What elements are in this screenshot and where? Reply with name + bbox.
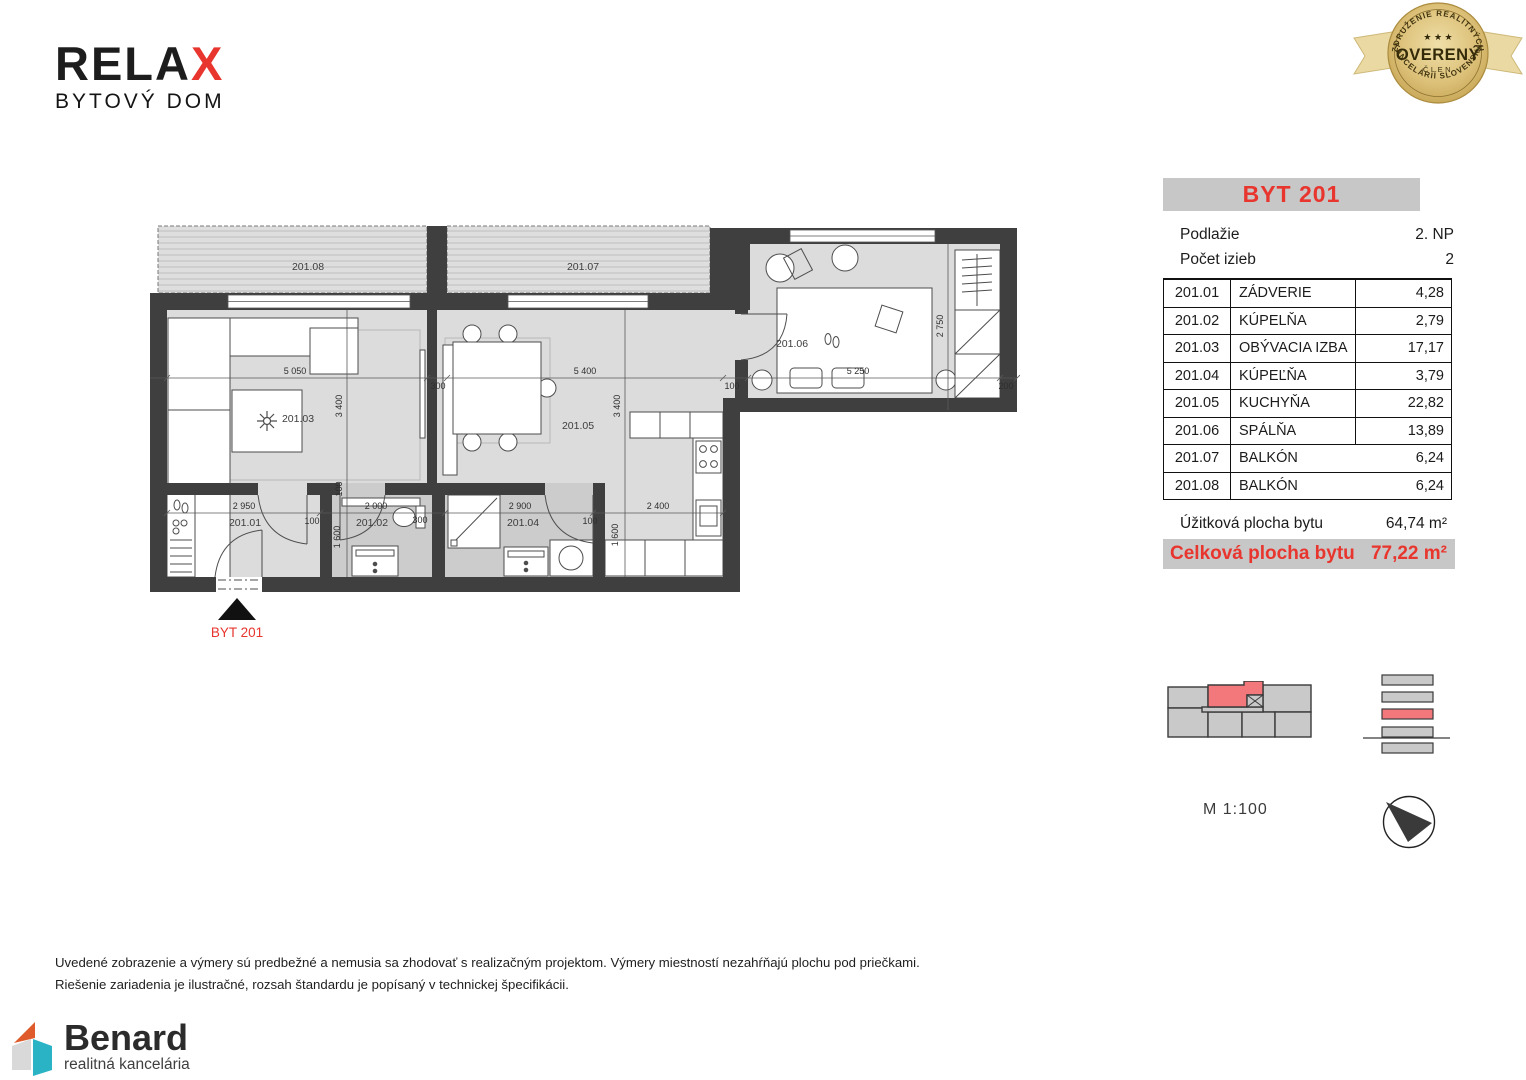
room-area: 22,82 xyxy=(1356,395,1451,411)
room-code: 201.03 xyxy=(1164,335,1231,362)
room-code: 201.08 xyxy=(1164,473,1231,500)
table-row: 201.02 KÚPELŇA 2,79 xyxy=(1164,308,1451,336)
dim-label: 100 xyxy=(724,381,739,391)
room-name: KÚPELŇA xyxy=(1231,308,1356,335)
room-code: 201.05 xyxy=(1164,390,1231,417)
tv xyxy=(420,350,425,438)
table-row: 201.03 OBÝVACIA IZBA 17,17 xyxy=(1164,335,1451,363)
balcony-201-08 xyxy=(158,226,427,293)
north-compass xyxy=(1381,795,1437,851)
dining-table xyxy=(453,342,541,434)
disclaimer-line1: Uvedené zobrazenie a výmery sú predbežné… xyxy=(55,952,1065,974)
benard-tagline: realitná kancelária xyxy=(64,1056,190,1074)
badge-stars-icon: ★ ★ ★ xyxy=(1423,32,1452,42)
room-name: OBÝVACIA IZBA xyxy=(1231,335,1356,362)
chair xyxy=(499,433,517,451)
room-area: 2,79 xyxy=(1356,313,1451,329)
hall-shoe-rack xyxy=(167,492,195,577)
table-row: 201.07 BALKÓN 6,24 xyxy=(1164,445,1451,473)
total-area-value: 77,22 m² xyxy=(1371,543,1447,565)
dim-label: 5 050 xyxy=(284,366,307,376)
slipper xyxy=(825,334,831,345)
room-name: KÚPEĽŇA xyxy=(1231,363,1356,390)
entrance-arrow-icon xyxy=(218,598,256,620)
room-name: ZÁDVERIE xyxy=(1231,280,1356,307)
bedroom-armchair xyxy=(766,254,794,282)
overeny-badge: ZDRUŽENIE REALITNÝCH ★ ★ ★ OVERENÝ ČLEN … xyxy=(1352,0,1524,124)
dim-label: 2 750 xyxy=(935,315,945,338)
total-area-label: Celková plocha bytu xyxy=(1170,543,1355,565)
room-area: 17,17 xyxy=(1356,340,1451,356)
dim-label: 2 950 xyxy=(233,501,256,511)
plant-icon xyxy=(257,411,277,431)
area-summary: Úžitková plocha bytu 64,74 m² Celková pl… xyxy=(1163,511,1455,569)
overeny-badge-seal-icon: ZDRUŽENIE REALITNÝCH ★ ★ ★ OVERENÝ ČLEN … xyxy=(1352,0,1524,124)
disclaimer: Uvedené zobrazenie a výmery sú predbežné… xyxy=(55,952,1065,996)
bathroom-sink xyxy=(550,540,593,576)
dim-label: 5 400 xyxy=(574,366,597,376)
floor-value: 2. NP xyxy=(1415,226,1454,244)
room-code: 201.07 xyxy=(1164,445,1231,472)
room-area: 4,28 xyxy=(1356,285,1451,301)
apartment-info: Podlažie 2. NP Počet izieb 2 xyxy=(1163,222,1464,272)
dim-label: 100 xyxy=(334,481,344,496)
room-label-201-03: 201.03 xyxy=(282,413,314,425)
dim-label: 3 400 xyxy=(334,395,344,418)
room-name: KUCHYŇA xyxy=(1231,390,1356,417)
room-code: 201.01 xyxy=(1164,280,1231,307)
apartment-title: BYT 201 xyxy=(1163,178,1420,211)
benard-text: Benard realitná kancelária xyxy=(64,1020,190,1074)
balcony-201-07 xyxy=(447,226,710,293)
relax-logo-title: RELAX xyxy=(55,40,225,88)
armchair xyxy=(310,328,358,374)
dim-label: 5 250 xyxy=(847,366,870,376)
room-area: 3,79 xyxy=(1356,368,1451,384)
table-row: 201.08 BALKÓN 6,24 xyxy=(1164,473,1451,500)
room-name: BALKÓN xyxy=(1231,445,1356,472)
relax-logo-black: RELA xyxy=(55,37,191,90)
room-area: 6,24 xyxy=(1356,450,1451,466)
dim-label: 300 xyxy=(412,515,427,525)
relax-logo-subtitle: BYTOVÝ DOM xyxy=(55,90,225,114)
dim-label: 100 xyxy=(304,516,319,526)
benard-cube-icon xyxy=(8,1020,54,1076)
slipper xyxy=(833,337,839,348)
room-code: 201.02 xyxy=(1164,308,1231,335)
room-label-201-01: 201.01 xyxy=(229,517,261,529)
kitchen-counter-top xyxy=(630,412,723,438)
side-table xyxy=(832,245,858,271)
compass-icon xyxy=(1381,795,1437,851)
info-row-floor: Podlažie 2. NP xyxy=(1180,222,1464,247)
table-row: 201.01 ZÁDVERIE 4,28 xyxy=(1164,280,1451,308)
room-area: 6,24 xyxy=(1356,478,1451,494)
apartment-info-panel: BYT 201 Podlažie 2. NP Počet izieb 2 201… xyxy=(1163,178,1455,569)
nightstand xyxy=(752,370,772,390)
entrance-marker: BYT 201 xyxy=(211,598,263,640)
relax-logo-red-x: X xyxy=(191,37,224,90)
room-label-201-04: 201.04 xyxy=(507,517,539,529)
entrance-label: BYT 201 xyxy=(211,625,263,640)
dim-label: 300 xyxy=(430,381,445,391)
room-code: 201.06 xyxy=(1164,418,1231,445)
dim-label: 2 900 xyxy=(509,501,532,511)
dim-label: 2 400 xyxy=(647,501,670,511)
room-name: SPÁLŇA xyxy=(1231,418,1356,445)
nightstand xyxy=(936,370,956,390)
relax-logo: RELAX BYTOVÝ DOM xyxy=(55,40,225,114)
table-row: 201.05 KUCHYŇA 22,82 xyxy=(1164,390,1451,418)
info-row-rooms: Počet izieb 2 xyxy=(1180,247,1464,272)
floor-plan: 5 050 300 5 400 100 5 250 200 3 400 100 … xyxy=(140,210,1020,650)
table-row: 201.04 KÚPEĽŇA 3,79 xyxy=(1164,363,1451,391)
badge-ribbon-left xyxy=(1354,32,1392,74)
badge-ribbon-right xyxy=(1484,32,1522,74)
building-section-icon xyxy=(1360,672,1455,756)
dim-label: 1 600 xyxy=(610,524,620,547)
room-label-201-05: 201.05 xyxy=(562,420,594,432)
benard-name: Benard xyxy=(64,1020,190,1056)
building-section-diagram xyxy=(1360,672,1455,756)
rooms-table: 201.01 ZÁDVERIE 4,28 201.02 KÚPELŇA 2,79… xyxy=(1163,278,1452,500)
usable-area-row: Úžitková plocha bytu 64,74 m² xyxy=(1163,511,1455,537)
disclaimer-line2: Riešenie zariadenia je ilustračné, rozsa… xyxy=(55,974,1065,996)
building-position-diagram xyxy=(1167,681,1313,743)
room-label-201-02: 201.02 xyxy=(356,517,388,529)
benard-logo: Benard realitná kancelária xyxy=(8,1020,190,1076)
room-label-201-06: 201.06 xyxy=(776,338,808,350)
room-label-201-07: 201.07 xyxy=(567,261,599,273)
room-count-label: Počet izieb xyxy=(1180,251,1256,269)
dim-label: 1 600 xyxy=(332,526,342,549)
chair xyxy=(499,325,517,343)
highlighted-floor xyxy=(1382,709,1433,719)
room-name: BALKÓN xyxy=(1231,473,1356,500)
chair xyxy=(463,325,481,343)
usable-area-label: Úžitková plocha bytu xyxy=(1180,515,1323,533)
floor-label: Podlažie xyxy=(1180,226,1239,244)
hob xyxy=(696,441,721,473)
kitchen-counter-bottom xyxy=(605,540,723,576)
dim-label: 3 400 xyxy=(612,395,622,418)
total-area-row: Celková plocha bytu 77,22 m² xyxy=(1163,539,1455,569)
room-area: 13,89 xyxy=(1356,423,1451,439)
room-count-value: 2 xyxy=(1445,251,1454,269)
dim-label: 2 000 xyxy=(365,501,388,511)
dim-label: 100 xyxy=(582,516,597,526)
room-label-201-08: 201.08 xyxy=(292,261,324,273)
table-row: 201.06 SPÁLŇA 13,89 xyxy=(1164,418,1451,446)
usable-area-value: 64,74 m² xyxy=(1386,515,1447,533)
wardrobe xyxy=(955,250,1000,398)
building-position-icon xyxy=(1167,681,1313,743)
floor-plan-drawing: 5 050 300 5 400 100 5 250 200 3 400 100 … xyxy=(140,210,1020,650)
room-code: 201.04 xyxy=(1164,363,1231,390)
chair xyxy=(463,433,481,451)
scale-label: M 1:100 xyxy=(1203,801,1268,819)
dim-label: 200 xyxy=(998,381,1013,391)
